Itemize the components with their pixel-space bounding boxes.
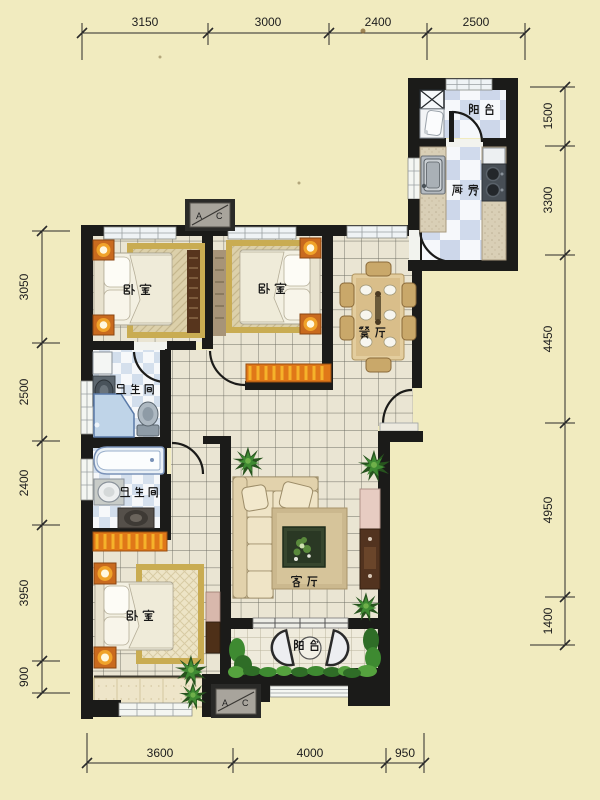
svg-text:4450: 4450 [541, 325, 555, 352]
svg-text:4950: 4950 [541, 496, 555, 523]
svg-text:950: 950 [395, 746, 415, 760]
svg-text:2400: 2400 [365, 15, 392, 29]
svg-text:3050: 3050 [17, 273, 31, 300]
svg-text:2400: 2400 [17, 469, 31, 496]
svg-text:A: A [222, 698, 228, 708]
svg-text:2500: 2500 [17, 378, 31, 405]
svg-text:4000: 4000 [297, 746, 324, 760]
svg-text:C: C [242, 698, 249, 708]
svg-text:A: A [196, 211, 202, 221]
svg-text:3600: 3600 [147, 746, 174, 760]
svg-text:2500: 2500 [463, 15, 490, 29]
svg-text:900: 900 [17, 667, 31, 687]
svg-text:3950: 3950 [17, 579, 31, 606]
svg-text:3150: 3150 [132, 15, 159, 29]
svg-text:1500: 1500 [541, 102, 555, 129]
svg-text:1400: 1400 [541, 607, 555, 634]
svg-text:3000: 3000 [255, 15, 282, 29]
svg-text:C: C [216, 211, 223, 221]
svg-text:3300: 3300 [541, 186, 555, 213]
